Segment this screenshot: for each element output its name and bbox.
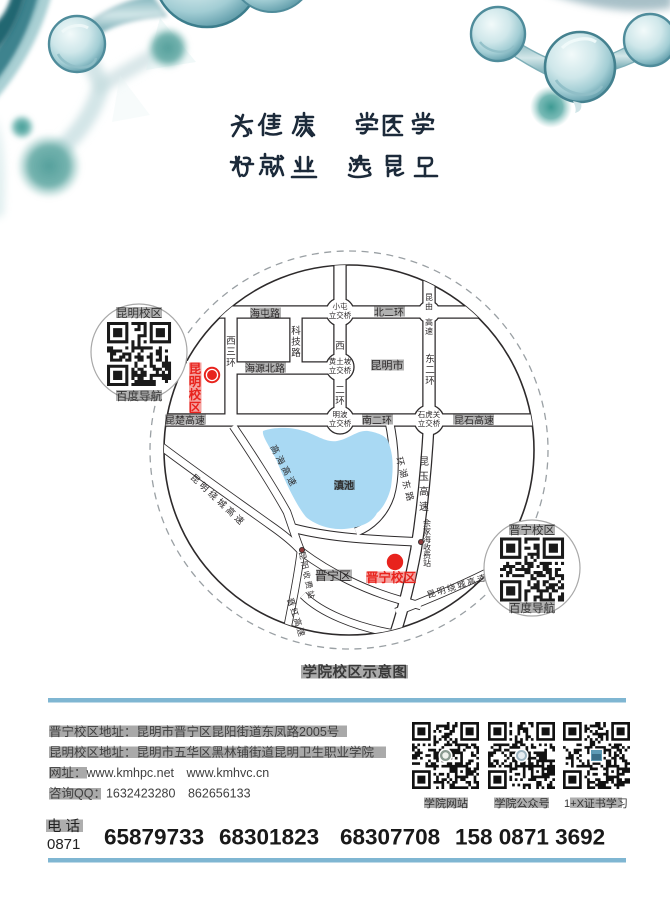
svg-text:1+X证书学习: 1+X证书学习 bbox=[564, 796, 628, 810]
svg-text:由: 由 bbox=[425, 301, 433, 311]
svg-text:电话: 电话 bbox=[47, 818, 84, 835]
svg-text:二: 二 bbox=[335, 385, 345, 396]
svg-text:立交桥: 立交桥 bbox=[329, 418, 352, 428]
svg-text:百度导航: 百度导航 bbox=[509, 601, 555, 615]
svg-text:明波: 明波 bbox=[333, 409, 348, 419]
svg-text:南二环: 南二环 bbox=[362, 414, 392, 427]
svg-text:昆明校区地址：昆明市五华区黑林铺街道昆明卫生职业学院: 昆明校区地址：昆明市五华区黑林铺街道昆明卫生职业学院 bbox=[49, 745, 375, 760]
svg-text:环: 环 bbox=[425, 376, 435, 387]
svg-text:昆: 昆 bbox=[189, 361, 202, 376]
svg-text:明: 明 bbox=[189, 375, 202, 389]
svg-text:昆明市: 昆明市 bbox=[371, 358, 404, 372]
svg-text:立交桥: 立交桥 bbox=[329, 310, 352, 320]
svg-text:速: 速 bbox=[419, 501, 429, 513]
svg-text:学院校区示意图: 学院校区示意图 bbox=[303, 663, 408, 681]
svg-text:三: 三 bbox=[226, 347, 236, 358]
svg-text:65879733: 65879733 bbox=[104, 825, 204, 850]
svg-text:小屯: 小屯 bbox=[333, 301, 348, 311]
svg-text:立交桥: 立交桥 bbox=[329, 365, 352, 375]
svg-text:立交桥: 立交桥 bbox=[418, 418, 441, 428]
svg-text:西: 西 bbox=[226, 336, 236, 347]
svg-text:黄土坡: 黄土坡 bbox=[329, 356, 352, 366]
svg-text:环: 环 bbox=[335, 396, 345, 407]
svg-text:东: 东 bbox=[425, 353, 435, 365]
svg-text:技: 技 bbox=[291, 336, 301, 348]
svg-text:二: 二 bbox=[425, 365, 435, 376]
svg-text:石虎关: 石虎关 bbox=[418, 409, 441, 419]
svg-text:区: 区 bbox=[189, 401, 202, 415]
svg-text:站: 站 bbox=[423, 558, 431, 568]
svg-text:68301823: 68301823 bbox=[219, 825, 319, 850]
svg-text:北二环: 北二环 bbox=[374, 307, 404, 319]
svg-text:学院公众号: 学院公众号 bbox=[495, 796, 550, 810]
svg-text:路: 路 bbox=[291, 347, 301, 359]
svg-text:昆: 昆 bbox=[425, 293, 433, 302]
svg-text:学院网站: 学院网站 bbox=[424, 796, 468, 810]
svg-text:晋宁校区: 晋宁校区 bbox=[366, 570, 417, 585]
svg-text:昆石高速: 昆石高速 bbox=[454, 414, 494, 427]
svg-text:海屯路: 海屯路 bbox=[250, 307, 280, 320]
svg-text:0871: 0871 bbox=[47, 836, 80, 853]
svg-text:网址：www.kmhpc.net www.kmhvc.cn: 网址：www.kmhpc.net www.kmhvc.cn bbox=[49, 766, 269, 780]
svg-text:晋宁区: 晋宁区 bbox=[315, 568, 351, 583]
svg-text:昆明校区: 昆明校区 bbox=[116, 306, 162, 320]
svg-text:速: 速 bbox=[425, 327, 433, 336]
svg-text:百度导航: 百度导航 bbox=[116, 389, 162, 403]
svg-text:高: 高 bbox=[425, 317, 433, 327]
svg-text:咨询QQ：1632423280 862656133: 咨询QQ：1632423280 862656133 bbox=[49, 786, 251, 801]
svg-text:玉: 玉 bbox=[419, 472, 429, 483]
svg-text:海源北路: 海源北路 bbox=[245, 362, 285, 375]
svg-text:西: 西 bbox=[335, 341, 345, 352]
svg-text:68307708: 68307708 bbox=[340, 825, 440, 850]
svg-text:高: 高 bbox=[419, 485, 429, 498]
svg-text:校: 校 bbox=[189, 387, 202, 402]
svg-text:晋宁校区地址：昆明市晋宁区昆阳街道东凤路2005号: 晋宁校区地址：昆明市晋宁区昆阳街道东凤路2005号 bbox=[49, 724, 339, 739]
svg-text:昆: 昆 bbox=[419, 456, 429, 468]
svg-text:环: 环 bbox=[226, 358, 236, 369]
svg-text:科: 科 bbox=[291, 325, 301, 337]
svg-text:晋宁校区: 晋宁校区 bbox=[509, 523, 555, 537]
svg-text:昆楚高速: 昆楚高速 bbox=[165, 414, 205, 427]
svg-text:158 0871 3692: 158 0871 3692 bbox=[455, 825, 605, 850]
